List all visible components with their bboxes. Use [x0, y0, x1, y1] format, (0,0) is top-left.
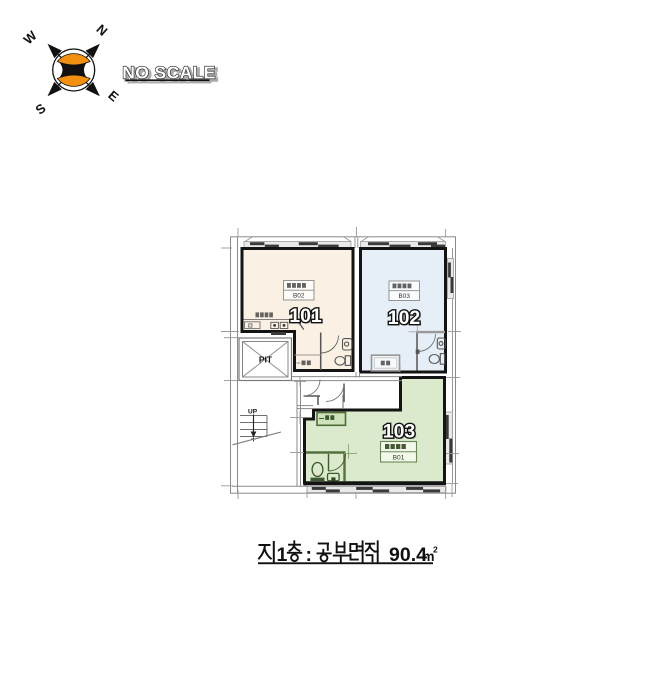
svg-text:PIT: PIT [259, 355, 273, 365]
svg-text:B03: B03 [399, 293, 411, 300]
svg-text::: : [306, 544, 313, 566]
svg-text:90.4: 90.4 [389, 544, 427, 566]
svg-text:2: 2 [433, 545, 438, 555]
svg-text:101: 101 [289, 305, 322, 327]
svg-text:1: 1 [277, 544, 288, 566]
svg-text:UP: UP [248, 409, 258, 416]
svg-text:102: 102 [388, 307, 421, 329]
svg-text:S: S [32, 100, 48, 117]
svg-text:B02: B02 [293, 293, 305, 300]
svg-text:103: 103 [383, 421, 416, 443]
svg-text:B01: B01 [393, 454, 405, 461]
svg-text:W: W [20, 27, 40, 47]
svg-text:N: N [93, 21, 110, 38]
svg-text:E: E [105, 87, 122, 104]
